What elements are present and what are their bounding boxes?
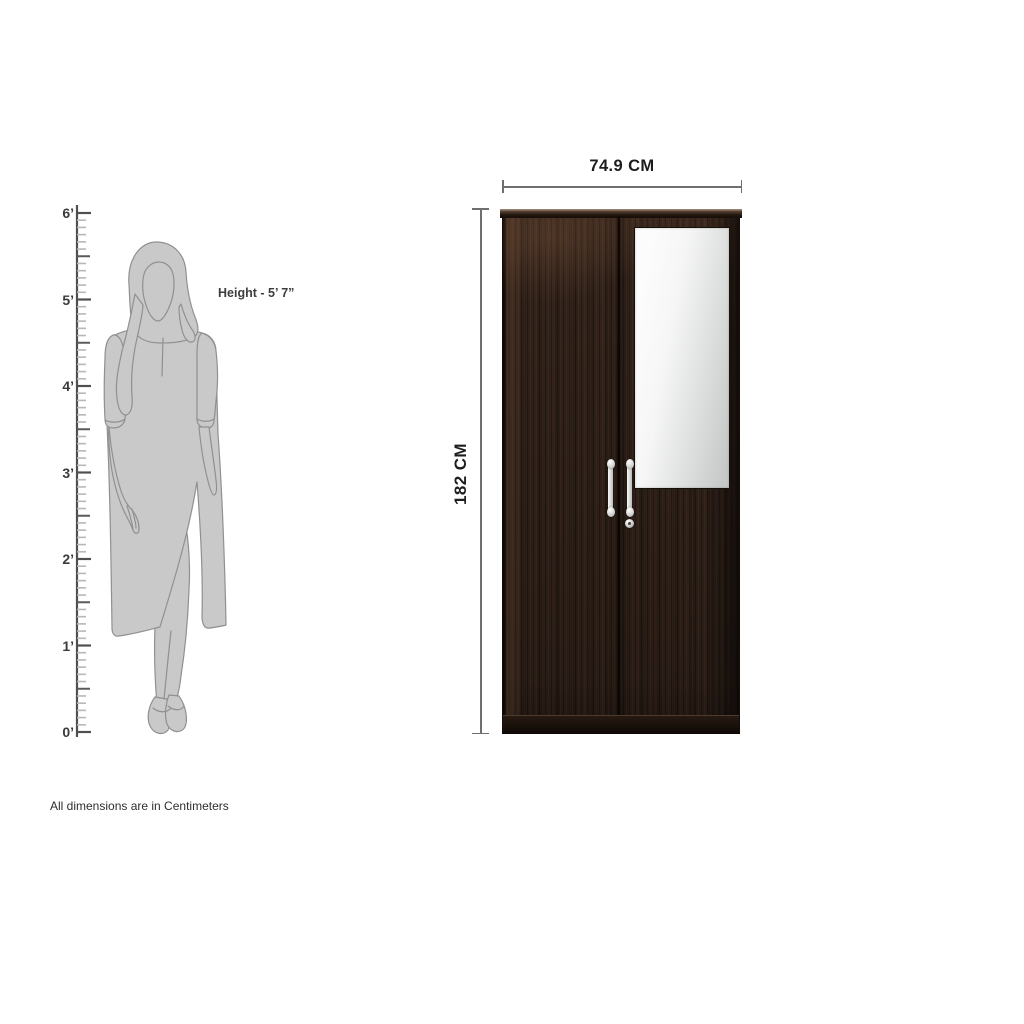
dimensions-footnote: All dimensions are in Centimeters [50, 799, 229, 813]
ruler-foot-label: 1’ [48, 638, 74, 654]
wardrobe-plinth [503, 715, 739, 733]
height-dimension-label: 182 CM [451, 443, 471, 505]
height-line-top-tick [472, 208, 489, 210]
wardrobe [500, 209, 742, 734]
wardrobe-top-trim [500, 209, 742, 218]
ruler-foot-label: 2’ [48, 551, 74, 567]
ruler-foot-label: 5’ [48, 292, 74, 308]
left-door-handle [608, 463, 613, 513]
wardrobe-body [502, 218, 740, 734]
woman-silhouette [98, 238, 238, 748]
height-ruler: 6’5’4’3’2’1’0’ [48, 205, 98, 737]
width-line-right-tick [741, 180, 743, 193]
right-door-handle [627, 463, 632, 513]
product-dimension-diagram: 6’5’4’3’2’1’0’ Height - 5’ 7” 74.9 CM [0, 0, 1024, 1024]
width-dimension-label: 74.9 CM [502, 157, 742, 176]
width-line-bar [502, 186, 742, 188]
width-line-left-tick [502, 180, 504, 193]
shoe-right [166, 695, 187, 732]
width-dimension: 74.9 CM [502, 157, 742, 193]
door-lock-knob [625, 519, 634, 528]
height-dimension: 182 CM [448, 208, 492, 734]
height-line-bar [480, 208, 482, 734]
lock-keyhole-dot [628, 522, 631, 525]
ruler-foot-label: 3’ [48, 465, 74, 481]
width-dimension-line [502, 180, 742, 193]
height-line-bottom-tick [472, 733, 489, 735]
person-height-label: Height - 5’ 7” [218, 286, 294, 300]
right-arm [197, 333, 218, 428]
mirror [634, 227, 730, 489]
door-gap-line [618, 218, 620, 717]
ruler-foot-label: 4’ [48, 378, 74, 394]
ruler-foot-label: 6’ [48, 205, 74, 221]
ruler-foot-label: 0’ [48, 724, 74, 740]
